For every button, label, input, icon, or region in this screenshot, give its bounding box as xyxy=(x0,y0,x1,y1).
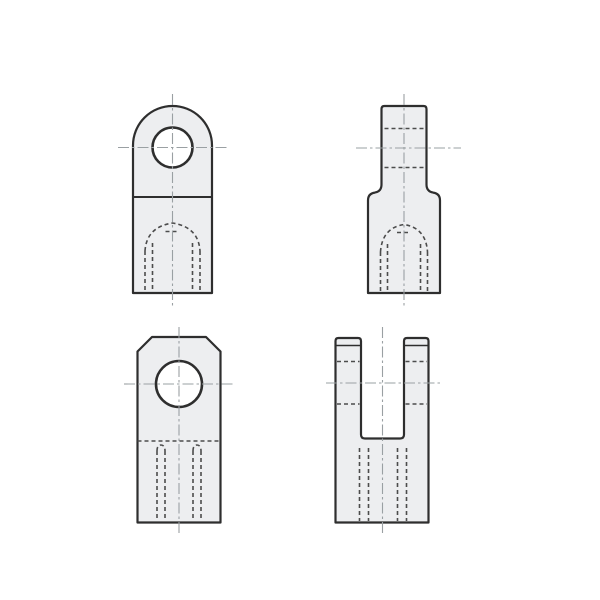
view-eye-end-front xyxy=(118,94,227,308)
view-eye-end-side xyxy=(356,94,461,308)
drawing-page xyxy=(0,0,600,600)
view-fork-end-side xyxy=(326,327,440,533)
view-fork-end-front xyxy=(124,327,234,533)
drawing-svg xyxy=(0,0,600,600)
